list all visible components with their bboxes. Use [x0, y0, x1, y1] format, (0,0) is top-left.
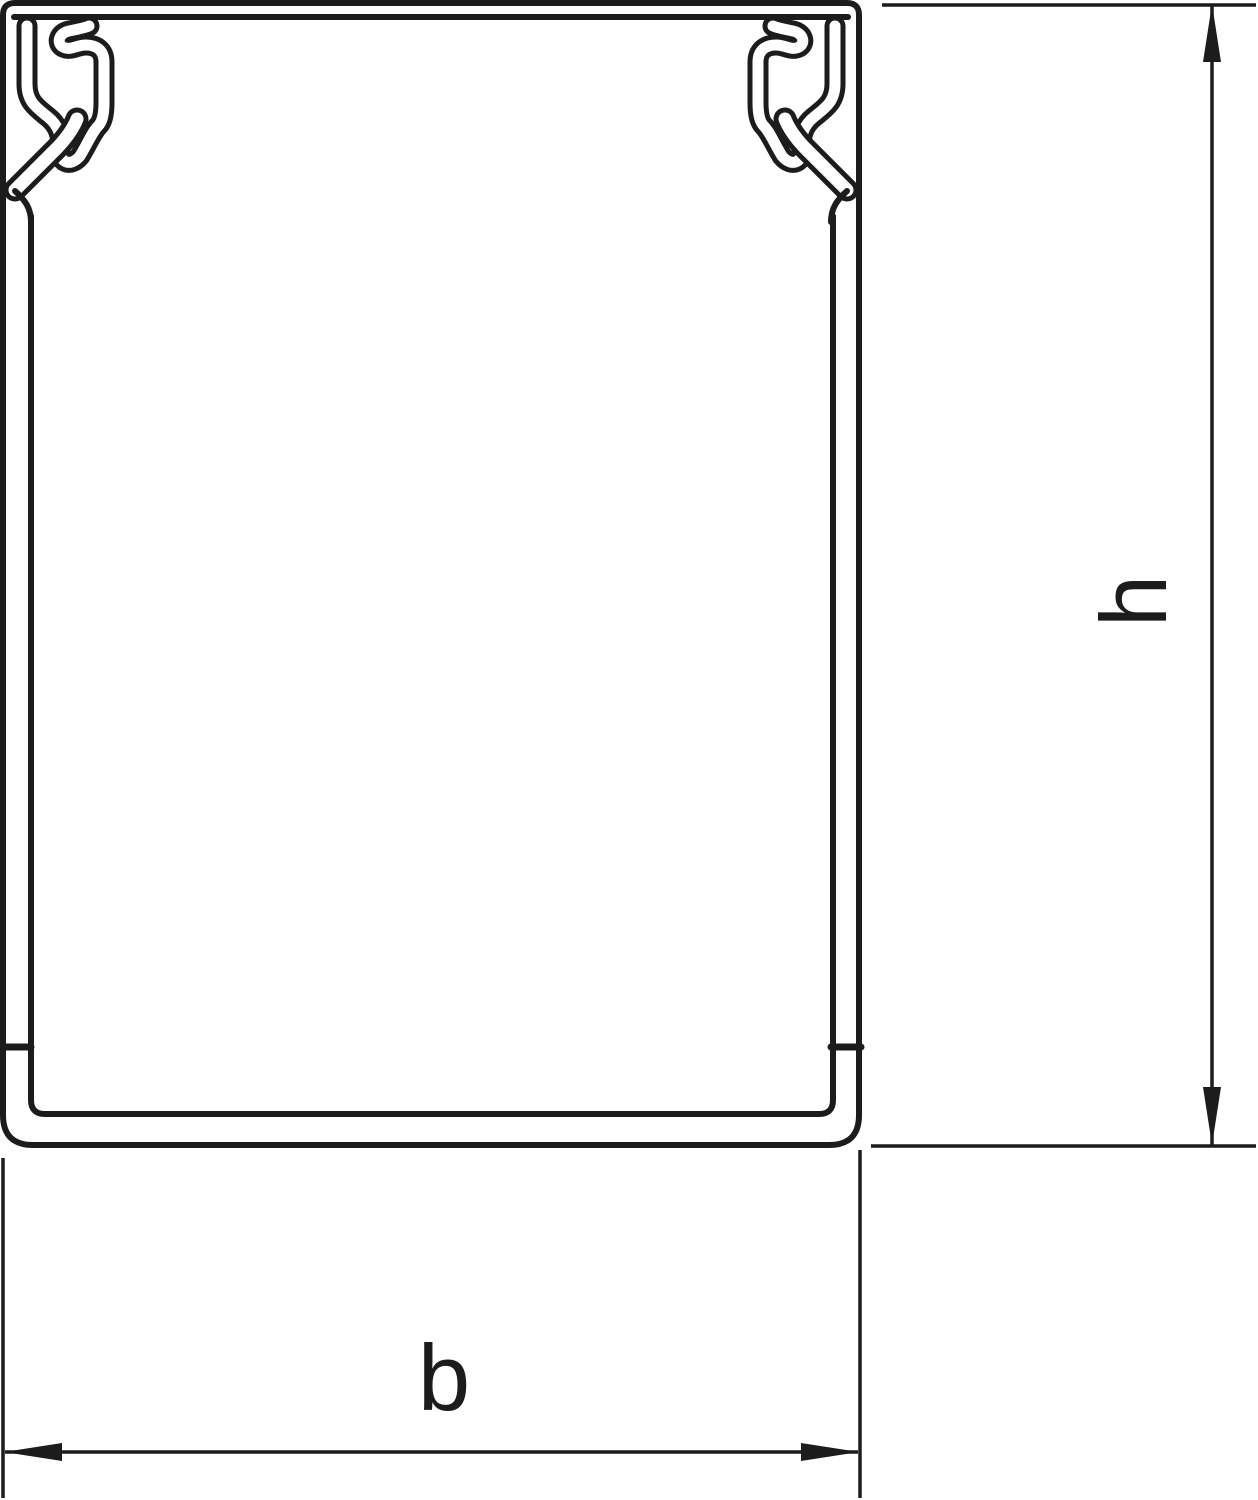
inner-profile-outline: [31, 216, 833, 1114]
wall-claw-left-junction: [15, 191, 31, 222]
trunking-profile-drawing: h b: [0, 0, 1258, 1500]
duct-body: [1, 3, 861, 1145]
outer-profile-outline: [3, 3, 859, 1145]
height-dimension: [871, 4, 1256, 1146]
width-dimension: [3, 1150, 860, 1498]
wall-claw-right-junction: [831, 191, 847, 222]
interlock-left: [15, 26, 104, 222]
dimension-label-height: h: [1081, 575, 1186, 627]
arrow-up-icon: [1203, 4, 1221, 62]
interlock-right: [758, 26, 847, 222]
dimension-label-width: b: [418, 1325, 470, 1430]
arrow-left-icon: [4, 1443, 62, 1461]
arrow-right-icon: [801, 1443, 859, 1461]
arrow-down-icon: [1203, 1087, 1221, 1145]
duct-cross-section-diagram: h b: [0, 0, 1258, 1500]
